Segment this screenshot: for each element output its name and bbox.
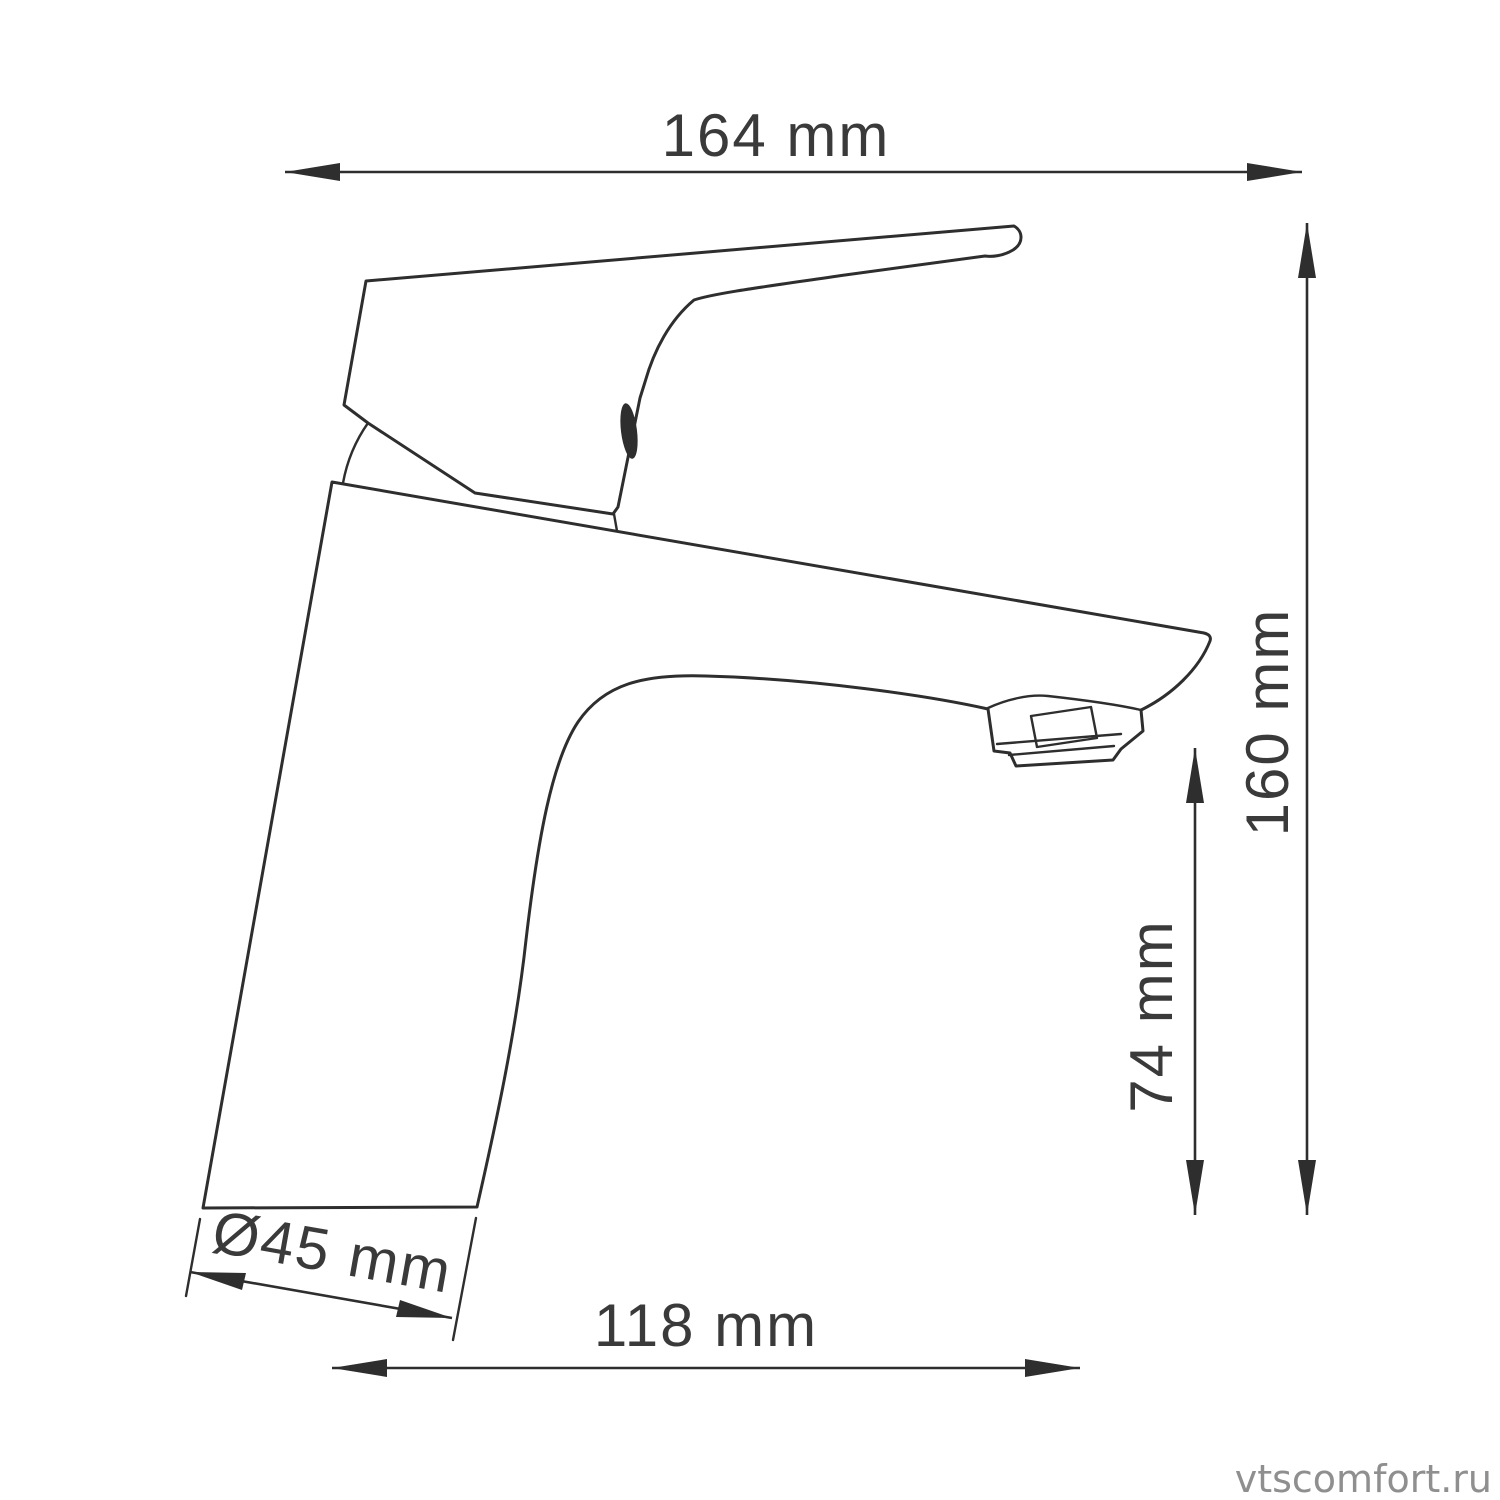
overall-height-arrow-top: [1298, 223, 1316, 278]
faucet-illustration: [203, 226, 1210, 1208]
faucet-body-outline: [203, 482, 1210, 1208]
overall-width-arrow-right: [1247, 163, 1302, 181]
spout-height-label: 74 mm: [1118, 919, 1185, 1112]
aerator-rim-line-2: [1009, 746, 1114, 755]
spout-reach-label: 118 mm: [594, 1292, 818, 1359]
base-diameter-arrow-left: [190, 1272, 246, 1290]
spout-reach-arrow-right: [1025, 1359, 1080, 1377]
faucet-dimension-drawing: 164 mm 160 mm 74 mm Ø45 mm: [0, 0, 1500, 1500]
dimension-spout-height: 74 mm: [1118, 748, 1204, 1215]
escutcheon-curve: [343, 423, 368, 483]
spout-height-arrow-bottom: [1186, 1160, 1204, 1215]
handle-body-joint-line: [614, 514, 617, 531]
base-diameter-witness-right: [453, 1218, 476, 1340]
dimension-overall-height: 160 mm: [1234, 223, 1316, 1215]
overall-height-label: 160 mm: [1234, 608, 1301, 837]
watermark-text: vtscomfort.ru: [1235, 1457, 1492, 1500]
spout-height-arrow-top: [1186, 748, 1204, 803]
dimension-base-diameter: Ø45 mm: [186, 1198, 476, 1340]
technical-drawing-page: 164 mm 160 mm 74 mm Ø45 mm: [0, 0, 1500, 1500]
base-diameter-witness-left: [186, 1219, 200, 1296]
faucet-handle-outline: [344, 226, 1021, 514]
overall-height-arrow-bottom: [1298, 1160, 1316, 1215]
overall-width-label: 164 mm: [662, 102, 891, 169]
base-diameter-label: Ø45 mm: [208, 1198, 458, 1306]
spout-underside-line: [988, 696, 1141, 710]
spout-reach-arrow-left: [332, 1359, 387, 1377]
overall-width-arrow-left: [285, 163, 340, 181]
dimension-overall-width: 164 mm: [285, 102, 1302, 181]
